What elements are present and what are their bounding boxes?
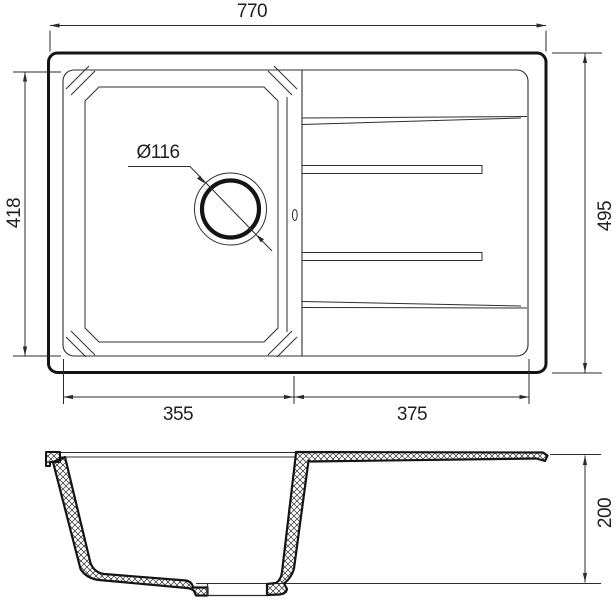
- arrow-right: [520, 395, 530, 399]
- arrow-up: [23, 72, 27, 82]
- dim-label-drain-diameter: Ø116: [136, 142, 179, 163]
- dim-200: 200: [550, 455, 616, 583]
- section-view: [46, 452, 601, 596]
- dim-label-overall-depth: 495: [595, 201, 616, 231]
- section-top-surface-lines: [59, 453, 297, 458]
- dim-495: 495: [552, 53, 616, 373]
- arrow-mid-left: [284, 395, 294, 399]
- dim-label-overall-width: 770: [237, 1, 267, 22]
- dim-label-bowl-width: 355: [163, 404, 193, 425]
- arrow-right: [537, 23, 547, 27]
- arrow-left: [50, 23, 60, 27]
- section-left-wall: [53, 457, 208, 596]
- dim-770: 770: [50, 1, 546, 52]
- dimensions-section-view: 200: [550, 455, 616, 583]
- arrow-left: [64, 395, 74, 399]
- arrow-up: [583, 54, 587, 64]
- arrow-down: [583, 363, 587, 373]
- arrow-down: [583, 573, 587, 583]
- top-view: [49, 53, 547, 373]
- dim-label-drainboard-width: 375: [397, 404, 427, 425]
- dim-label-bowl-length: 418: [4, 198, 25, 228]
- section-right-wall-and-drainboard: [267, 452, 548, 595]
- arrow-down: [23, 347, 27, 357]
- arrow-mid-right: [295, 395, 305, 399]
- dim-label-bowl-depth: 200: [595, 498, 616, 528]
- sink-technical-drawing: 770 495 418 355 375: [0, 0, 616, 600]
- drawing-canvas: 770 495 418 355 375: [0, 0, 616, 600]
- section-drain-recess: [208, 584, 268, 596]
- groove-bottom-edge: [302, 308, 527, 309]
- arrow-up: [583, 456, 587, 466]
